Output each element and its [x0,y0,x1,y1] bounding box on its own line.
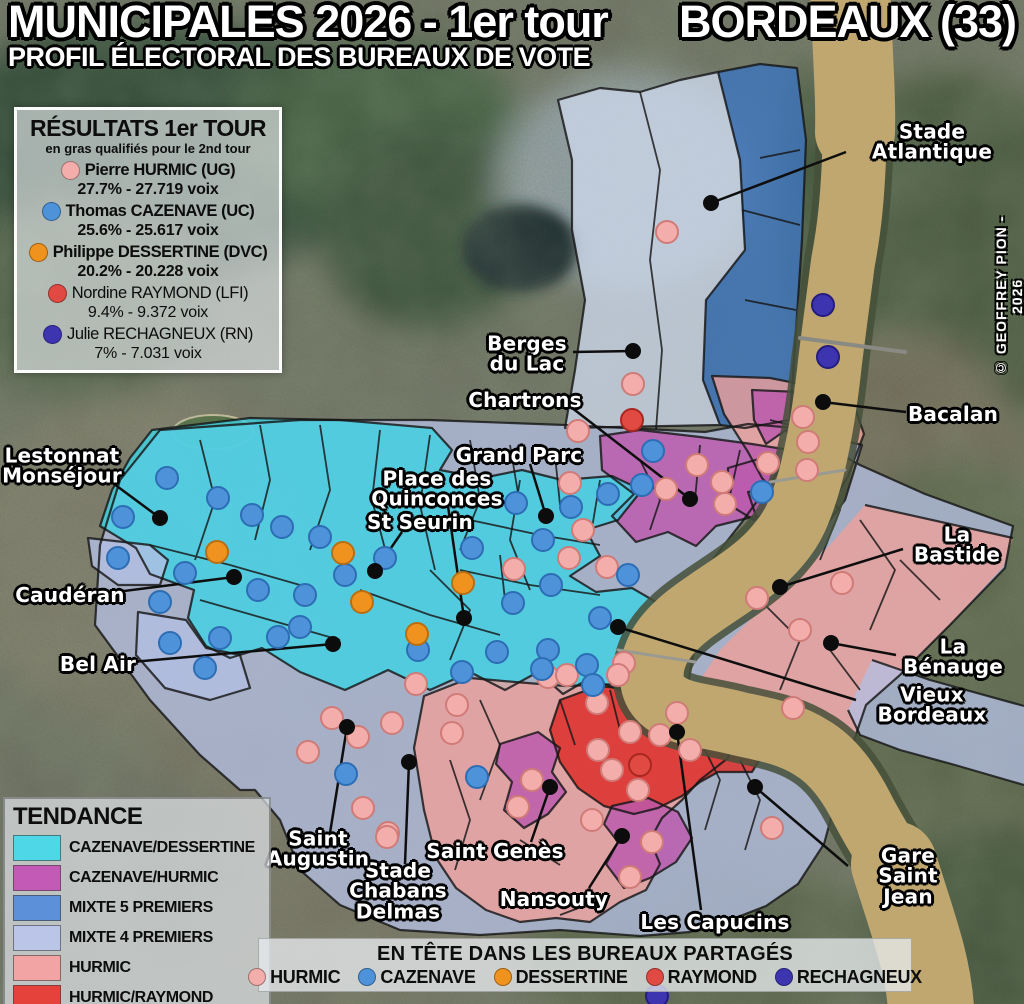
bureau-dot-dessertine [406,623,428,645]
bureau-dot-cazenave [486,641,508,663]
bureau-dot-cazenave [531,658,553,680]
callout-anchor-dot [703,195,719,211]
results-legend-subtitle: en gras qualifiés pour le 2nd tour [21,141,275,156]
bureau-dot-hurmic [782,697,804,719]
bureau-dot-hurmic [711,471,733,493]
bureau-dot-cazenave [505,492,527,514]
bureau-dot-hurmic [666,702,688,724]
bureau-dot-hurmic [831,572,853,594]
bureau-dot-cazenave [576,654,598,676]
callout-anchor-dot [669,724,685,740]
bureau-dot-cazenave [156,467,178,489]
bureau-dot-cazenave [309,526,331,548]
callout-anchor-dot [610,619,626,635]
tendance-legend-title: TENDANCE [13,803,263,831]
shared-item-raymond: RAYMOND [646,967,757,988]
bureau-dot-hurmic [655,478,677,500]
bureau-dot-cazenave [631,474,653,496]
results-legend: RÉSULTATS 1er TOUR en gras qualifiés pou… [14,107,282,373]
candidate-name: Philippe DESSERTINE (DVC) [53,243,268,262]
shared-item-dessertine: DESSERTINE [494,967,628,988]
bureau-dot-cazenave [540,574,562,596]
bureau-dot-cazenave [335,763,357,785]
bureau-dot-hurmic [441,722,463,744]
candidate-score: 20.2% - 20.228 voix [21,263,275,281]
bureau-dot-cazenave [642,440,664,462]
bureau-dot-hurmic [761,817,783,839]
shared-label: RAYMOND [668,967,757,988]
bureau-dot-cazenave [617,564,639,586]
bureau-dot-raymond [621,409,643,431]
callout-line [573,351,633,352]
candidate-name: Julie RECHAGNEUX (RN) [67,325,253,344]
bureau-dot-dessertine [452,572,474,594]
callout-anchor-dot [152,510,168,526]
bureau-dot-rechagneux [817,346,839,368]
callout-anchor-dot [625,343,641,359]
candidate-score: 9.4% - 9.372 voix [21,304,275,322]
candidate-name: Nordine RAYMOND (LFI) [72,284,249,303]
callout-anchor-dot [339,719,355,735]
callout-anchor-dot [456,610,472,626]
bureau-dot-cazenave [194,657,216,679]
bureau-dot-cazenave [582,674,604,696]
candidate-row: Thomas CAZENAVE (UC) [21,202,275,221]
bureau-dot-dessertine [332,542,354,564]
candidate-name: Pierre HURMIC (UG) [85,161,236,180]
bureau-dot-cazenave [159,632,181,654]
bureau-dot-hurmic [556,664,578,686]
bureau-dot-hurmic [446,694,468,716]
bureau-dot-cazenave [294,584,316,606]
candidate-row: Nordine RAYMOND (LFI) [21,284,275,303]
bureau-dot-raymond [629,754,651,776]
bureau-dot-cazenave [502,592,524,614]
bureau-dot-hurmic [596,556,618,578]
callout-anchor-dot [682,491,698,507]
candidate-dot-hurmic [61,161,80,180]
bureau-dot-dessertine [351,591,373,613]
tendance-label: CAZENAVE/HURMIC [69,869,218,887]
bureau-dot-hurmic [757,452,779,474]
callout-anchor-dot [772,579,788,595]
shared-bureaus-legend: EN TÊTE DANS LES BUREAUX PARTAGÉS HURMIC… [258,938,912,992]
dot-rechagneux [775,968,793,986]
bureau-dot-hurmic [789,619,811,641]
bureau-dot-cazenave [174,562,196,584]
bureau-dot-hurmic [619,866,641,888]
bureau-dot-hurmic [558,547,580,569]
swatch-mixte-4 [13,925,61,951]
candidate-dot-cazenave [42,202,61,221]
bureau-dot-cazenave [461,537,483,559]
callout-anchor-dot [747,779,763,795]
candidate-score: 7% - 7.031 voix [21,345,275,363]
candidate-dot-raymond [48,284,67,303]
shared-label: RECHAGNEUX [797,967,922,988]
tendance-row: MIXTE 5 PREMIERS [13,895,263,921]
bureau-dot-hurmic [679,739,701,761]
shared-label: DESSERTINE [516,967,628,988]
candidate-dot-dessertine [29,243,48,262]
dot-dessertine [494,968,512,986]
shared-bureaus-title: EN TÊTE DANS LES BUREAUX PARTAGÉS [377,943,793,966]
bureau-dot-cazenave [112,506,134,528]
bureau-dot-hurmic [581,809,603,831]
swatch-cazenave-hurmic [13,865,61,891]
bureau-dot-cazenave [209,627,231,649]
tendance-label: MIXTE 5 PREMIERS [69,899,213,917]
callout-anchor-dot [542,779,558,795]
bureau-dot-hurmic [627,779,649,801]
bureau-dot-cazenave [334,564,356,586]
bureau-dot-hurmic [352,797,374,819]
bureau-dot-hurmic [792,406,814,428]
bureau-dot-cazenave [271,516,293,538]
bureau-dot-cazenave [107,547,129,569]
candidate-row: Philippe DESSERTINE (DVC) [21,243,275,262]
bureau-dot-hurmic [567,420,589,442]
bureau-dot-hurmic [572,519,594,541]
shared-label: CAZENAVE [380,967,475,988]
bureau-dot-hurmic [656,221,678,243]
shared-item-hurmic: HURMIC [248,967,340,988]
bureau-dot-cazenave [289,616,311,638]
bureau-dot-cazenave [532,529,554,551]
author-credit: © GEOFFREY PION - 2026 [993,196,1019,396]
candidate-row: Julie RECHAGNEUX (RN) [21,325,275,344]
callout-anchor-dot [815,394,831,410]
tendance-label: CAZENAVE/DESSERTINE [69,839,255,857]
callout-anchor-dot [325,636,341,652]
bureau-dot-cazenave [451,661,473,683]
candidate-row: Pierre HURMIC (UG) [21,161,275,180]
callout-anchor-dot [367,563,383,579]
swatch-hurmic-raymond [13,985,61,1004]
callout-anchor-dot [226,569,242,585]
bureau-dot-cazenave [597,483,619,505]
tendance-label: HURMIC [69,959,131,977]
bureau-dot-hurmic [601,759,623,781]
tendance-row: HURMIC [13,955,263,981]
tendance-legend: TENDANCE CAZENAVE/DESSERTINE CAZENAVE/HU… [3,797,271,1004]
tendance-row: MIXTE 4 PREMIERS [13,925,263,951]
bureau-dot-cazenave [207,487,229,509]
shared-bureaus-row: HURMIC CAZENAVE DESSERTINE RAYMOND RECHA… [248,967,922,988]
bureau-dot-hurmic [714,493,736,515]
map-infographic: Stade AtlantiqueBerges du LacChartronsGr… [0,0,1024,1004]
bureau-dot-hurmic [622,373,644,395]
swatch-hurmic [13,955,61,981]
candidate-dot-rechagneux [43,325,62,344]
bureau-dot-hurmic [521,769,543,791]
shared-item-cazenave: CAZENAVE [358,967,475,988]
shared-item-rechagneux: RECHAGNEUX [775,967,922,988]
bureau-dot-hurmic [796,459,818,481]
bureau-dot-hurmic [797,431,819,453]
swatch-mixte-5 [13,895,61,921]
bureau-dot-hurmic [503,558,525,580]
tendance-row: HURMIC/RAYMOND [13,985,263,1004]
swatch-cazenave-dessertine [13,835,61,861]
bureau-dot-hurmic [619,721,641,743]
bureau-dot-hurmic [405,673,427,695]
candidate-score: 27.7% - 27.719 voix [21,181,275,199]
bureau-dot-cazenave [241,504,263,526]
dot-raymond [646,968,664,986]
bureau-dot-hurmic [686,454,708,476]
candidate-name: Thomas CAZENAVE (UC) [66,202,255,221]
callout-anchor-dot [614,828,630,844]
bureau-dot-hurmic [507,796,529,818]
bureau-dot-cazenave [751,481,773,503]
tendance-label: MIXTE 4 PREMIERS [69,929,213,947]
dot-hurmic [248,968,266,986]
bureau-dot-cazenave [267,626,289,648]
tendance-row: CAZENAVE/HURMIC [13,865,263,891]
bureau-dot-cazenave [149,591,171,613]
bureau-dot-dessertine [206,541,228,563]
bureau-dot-hurmic [376,826,398,848]
bureau-dot-hurmic [641,831,663,853]
bureau-dot-hurmic [297,741,319,763]
bureau-dot-cazenave [560,496,582,518]
bureau-dot-cazenave [466,766,488,788]
bureau-dot-cazenave [247,579,269,601]
callout-anchor-dot [538,508,554,524]
tendance-row: CAZENAVE/DESSERTINE [13,835,263,861]
bureau-dot-cazenave [589,607,611,629]
results-legend-title: RÉSULTATS 1er TOUR [21,115,275,142]
bureau-dot-hurmic [381,712,403,734]
candidate-score: 25.6% - 25.617 voix [21,222,275,240]
bureau-dot-hurmic [649,724,671,746]
bureau-dot-hurmic [587,739,609,761]
bureau-dot-hurmic [559,472,581,494]
tendance-label: HURMIC/RAYMOND [69,989,213,1004]
callout-anchor-dot [823,635,839,651]
shared-label: HURMIC [270,967,340,988]
callout-anchor-dot [401,754,417,770]
bureau-dot-rechagneux [812,294,834,316]
bureau-dot-hurmic [746,587,768,609]
bureau-dot-hurmic [607,664,629,686]
dot-cazenave [358,968,376,986]
